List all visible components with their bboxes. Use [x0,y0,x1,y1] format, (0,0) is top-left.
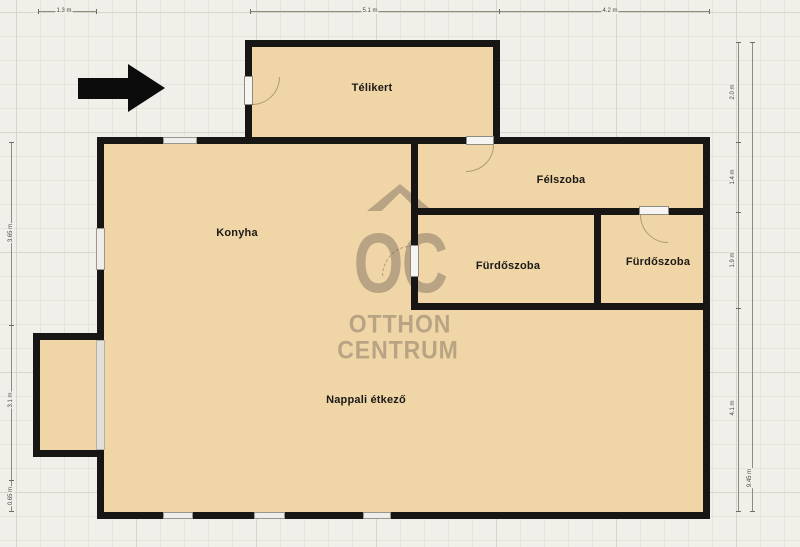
floor-plan: OC OTTHON CENTRUM Télikert Félszoba Kony… [0,0,800,547]
wall [703,144,710,519]
wall [418,303,710,310]
wall [40,333,98,340]
dimension-tick [9,480,14,481]
room-label-nappali: Nappali étkező [326,394,406,406]
annex-floor [33,333,98,457]
door [466,136,494,145]
room-label-konyha: Konyha [216,227,258,239]
dimension-label: 4.2 m [601,8,618,14]
window [254,512,285,519]
dimension-line [738,42,739,512]
wall [245,104,252,137]
dimension-line [11,142,12,512]
arrow-shaft [78,78,130,99]
dimension-tick [750,42,755,43]
wall [245,40,500,47]
dimension-tick [709,9,710,14]
wall [245,47,252,77]
wall [411,144,418,310]
dimension-label: 2.0 m [730,83,736,100]
dimension-label: 0.65 m [8,486,14,506]
window [96,228,105,270]
dimension-label: 3.65 m [8,223,14,243]
dimension-tick [736,511,741,512]
room-label-felszoba: Félszoba [537,174,586,186]
dimension-tick [250,9,251,14]
wall [594,215,601,310]
room-label-furdoszoba-2: Fürdőszoba [626,256,690,268]
window [163,137,197,144]
door [639,206,669,215]
wall [97,144,104,519]
door [410,245,419,277]
dimension-tick [9,142,14,143]
wall [493,40,500,144]
dimension-label: 4.1 m [730,399,736,416]
room-label-telikert: Télikert [352,82,393,94]
dimension-label: 3.1 m [8,391,14,408]
dimension-tick [736,142,741,143]
window [363,512,391,519]
wall [33,333,40,457]
dimension-label: 1.3 m [55,8,72,14]
window [163,512,193,519]
window [96,340,105,450]
dimension-tick [736,212,741,213]
dimension-label: 9.45 m [747,468,753,488]
dimension-tick [96,9,97,14]
dimension-label: 1.9 m [730,251,736,268]
dimension-tick [750,511,755,512]
wall [40,450,98,457]
room-label-furdoszoba-1: Fürdőszoba [476,260,540,272]
dimension-tick [9,325,14,326]
dimension-label: 5.1 m [361,8,378,14]
dimension-tick [9,511,14,512]
dimension-label: 1.4 m [730,168,736,185]
arrow-head [128,64,165,112]
dimension-tick [736,42,741,43]
dimension-tick [736,308,741,309]
dimension-tick [38,9,39,14]
dimension-line [752,42,753,512]
